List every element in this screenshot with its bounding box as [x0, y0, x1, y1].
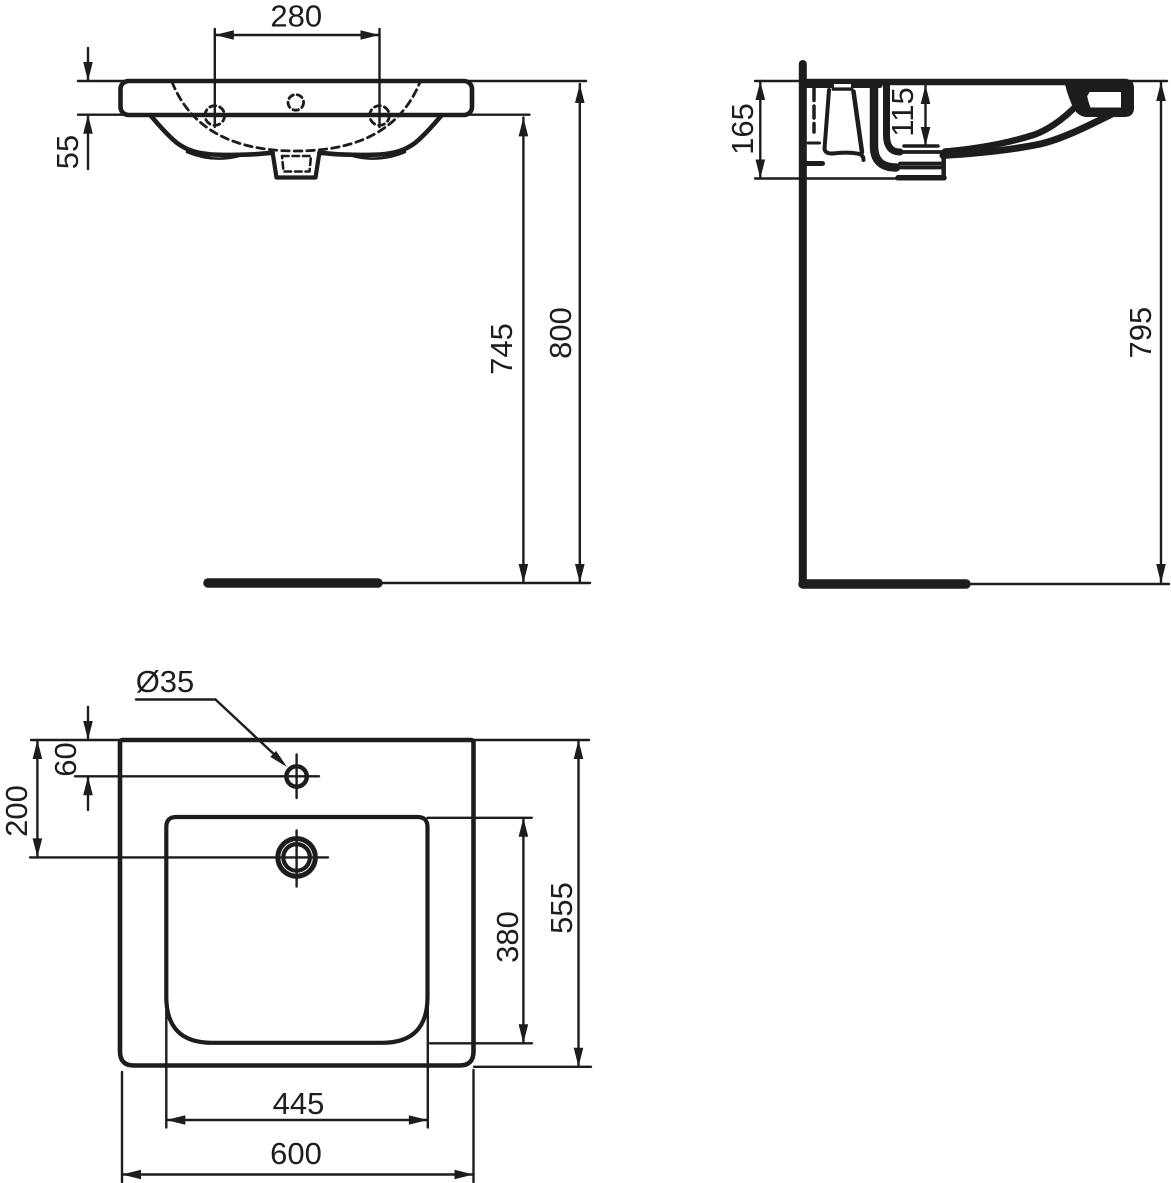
svg-text:800: 800 — [543, 307, 578, 359]
svg-text:745: 745 — [484, 323, 519, 375]
svg-text:55: 55 — [50, 135, 85, 169]
svg-text:280: 280 — [270, 0, 322, 34]
svg-text:795: 795 — [1123, 307, 1158, 359]
svg-text:200: 200 — [0, 785, 34, 837]
svg-text:380: 380 — [490, 911, 525, 963]
svg-text:Ø35: Ø35 — [136, 664, 195, 699]
svg-text:60: 60 — [48, 742, 83, 776]
svg-text:555: 555 — [544, 882, 579, 934]
svg-text:445: 445 — [273, 1086, 325, 1121]
svg-text:115: 115 — [885, 87, 920, 136]
svg-text:165: 165 — [725, 103, 760, 155]
svg-text:600: 600 — [270, 1136, 322, 1171]
